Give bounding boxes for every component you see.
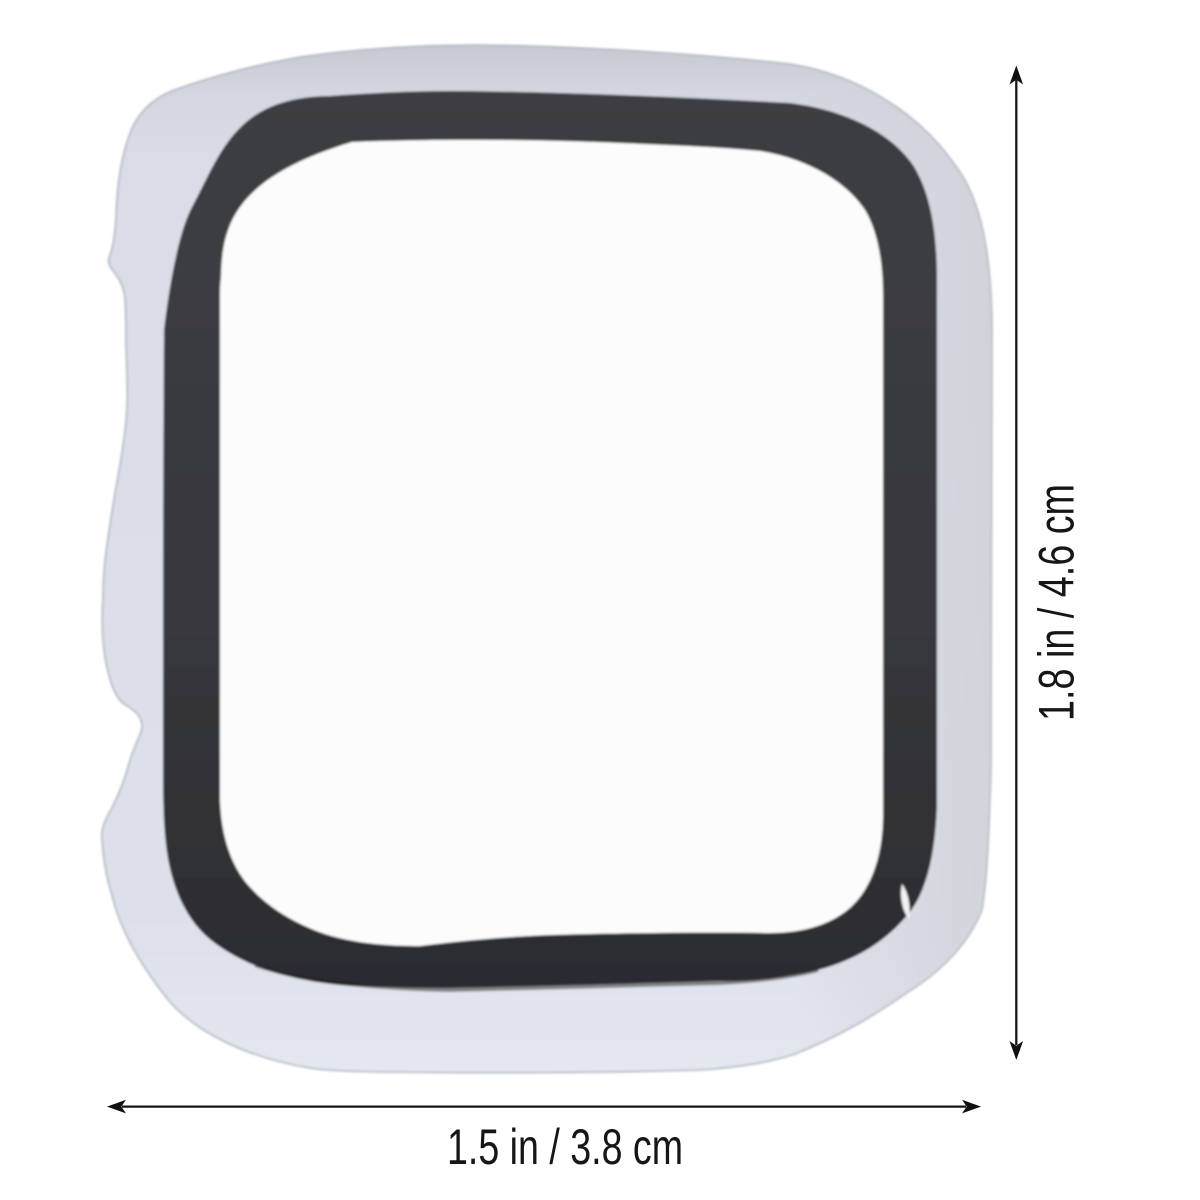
svg-text:1.5 in / 3.8 cm: 1.5 in / 3.8 cm (447, 1119, 683, 1175)
svg-text:1.8 in / 4.6 cm: 1.8 in / 4.6 cm (1029, 484, 1085, 721)
